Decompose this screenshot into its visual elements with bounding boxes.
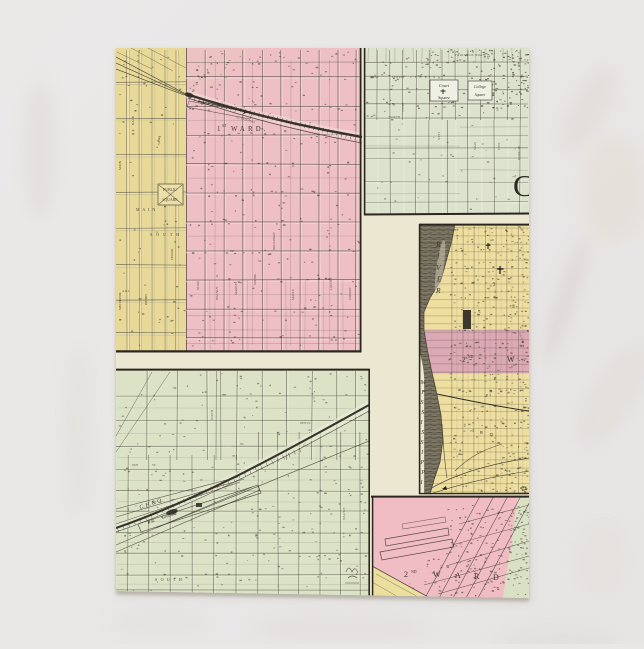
svg-text:M: M — [420, 380, 427, 386]
svg-text:P: P — [420, 470, 425, 476]
svg-text:ST.: ST. — [230, 249, 234, 253]
svg-text:MARKET: MARKET — [234, 281, 238, 295]
svg-text:VAIL: VAIL — [157, 137, 161, 145]
svg-text:W: W — [507, 355, 517, 364]
svg-text:A: A — [455, 571, 461, 580]
svg-text:MECHANIC: MECHANIC — [118, 291, 122, 310]
svg-text:W: W — [433, 570, 441, 579]
svg-text:R: R — [435, 286, 441, 295]
svg-text:MAPLE: MAPLE — [291, 289, 295, 300]
svg-text:WALNUT: WALNUT — [215, 286, 219, 300]
svg-text:R: R — [474, 572, 480, 581]
svg-text:WALNUT: WALNUT — [342, 507, 346, 520]
svg-text:SOUTH: SOUTH — [210, 409, 214, 420]
svg-text:Square: Square — [438, 95, 450, 100]
svg-text:S O U T H: S O U T H — [150, 232, 181, 237]
svg-text:S: S — [421, 440, 424, 446]
svg-text:CEDAR: CEDAR — [170, 248, 174, 260]
svg-text:WEST: WEST — [370, 75, 379, 79]
svg-text:RACE: RACE — [131, 116, 135, 125]
svg-text:COURT: COURT — [402, 102, 405, 112]
svg-text:D: D — [493, 573, 499, 582]
svg-text:SPRING: SPRING — [253, 273, 257, 285]
svg-text:S: S — [421, 430, 424, 436]
svg-text:ST.: ST. — [258, 259, 262, 263]
svg-text:9TH: 9TH — [132, 463, 139, 467]
svg-text:Court: Court — [439, 83, 450, 88]
svg-text:MAIN: MAIN — [473, 141, 477, 150]
svg-text:CHERRY: CHERRY — [348, 287, 352, 300]
svg-text:C E N T E R: C E N T E R — [410, 75, 436, 79]
svg-text:S: S — [421, 410, 424, 416]
svg-text:FAIRGROUND: FAIRGROUND — [455, 53, 481, 57]
svg-text:ND: ND — [468, 355, 474, 359]
svg-text:CENTER: CENTER — [392, 75, 405, 79]
svg-text:M A I N: M A I N — [136, 207, 156, 212]
svg-text:ST.: ST. — [152, 463, 156, 467]
svg-text:A R L: A R L — [122, 289, 130, 293]
svg-text:ND: ND — [411, 570, 417, 574]
svg-text:WARD.: WARD. — [231, 126, 269, 133]
svg-text:8TH ST.: 8TH ST. — [300, 421, 311, 425]
svg-text:R: R — [480, 430, 483, 435]
svg-text:ST: ST — [222, 124, 227, 128]
svg-text:S: S — [421, 400, 424, 406]
svg-text:Square: Square — [475, 93, 486, 97]
svg-text:PUBLIC: PUBLIC — [163, 188, 177, 192]
svg-text:SQUARE: SQUARE — [162, 198, 178, 202]
svg-text:SOUTH: SOUTH — [390, 115, 401, 119]
svg-text:2: 2 — [404, 570, 408, 579]
svg-text:1: 1 — [217, 125, 221, 133]
svg-text:WEST: WEST — [437, 132, 441, 140]
svg-text:College: College — [474, 84, 487, 89]
svg-text:LOCUST: LOCUST — [329, 278, 333, 290]
svg-text:BROADWAY: BROADWAY — [272, 231, 276, 250]
svg-text:E: E — [436, 275, 442, 284]
svg-text:MAIN: MAIN — [118, 160, 122, 170]
svg-text:ST.: ST. — [240, 442, 244, 446]
svg-text:ST.: ST. — [300, 187, 304, 191]
svg-text:EAST: EAST — [497, 142, 501, 150]
svg-text:RAILROAD: RAILROAD — [518, 146, 521, 160]
svg-text:S O U T H: S O U T H — [155, 577, 183, 582]
svg-text:HENRY: HENRY — [144, 293, 148, 305]
svg-text:STATE: STATE — [196, 281, 200, 290]
svg-text:2: 2 — [462, 356, 466, 364]
svg-text:I: I — [436, 252, 440, 261]
svg-text:R: R — [435, 240, 441, 249]
